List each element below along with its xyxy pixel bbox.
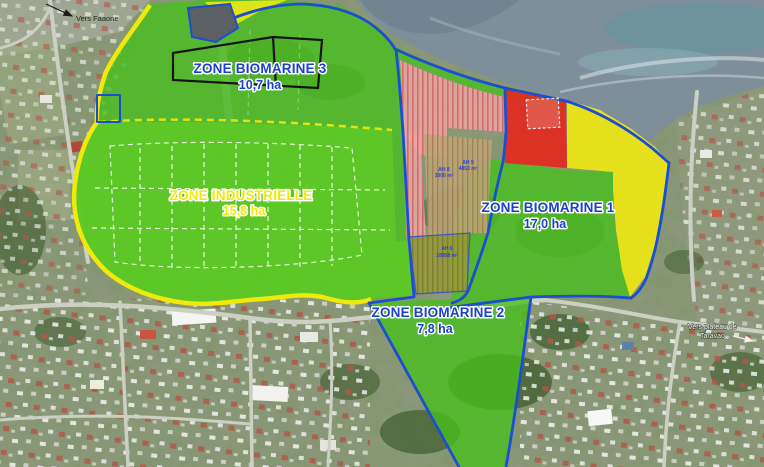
zone-biomarine-1-label: ZONE BIOMARINE 1: [482, 200, 615, 215]
parcel-ah6-ref: AH 6: [441, 246, 453, 252]
vers-faaone-label: Vers Faaone: [76, 14, 119, 23]
vers-taravao-label-line2: Taravao: [700, 333, 725, 340]
zone-industrielle-label: ZONE INDUSTRIELLE: [170, 188, 313, 203]
vers-taravao-label-line1: Vers plateau de: [688, 324, 737, 331]
parcel-ah9-size: 4853 m²: [459, 166, 478, 172]
farm-parcel-lower: [409, 233, 470, 294]
zone-industrielle-area-label: 15,8 ha: [223, 204, 266, 218]
red-zone-parcel: [526, 98, 559, 129]
satellite-map-canvas: ZONE BIOMARINE 3 10,7 ha ZONE INDUSTRIEL…: [0, 0, 764, 467]
zone-biomarine-2-area-label: 7,8 ha: [417, 322, 453, 336]
parcel-ah6-size: 18958 m²: [436, 253, 458, 259]
farm-parcel-upper: [424, 134, 492, 236]
zone-biomarine-3-area-label: 10,7 ha: [239, 78, 282, 92]
zone-biomarine-1-area-label: 17,0 ha: [524, 217, 567, 231]
parcel-ah8-size: 3000 m²: [435, 173, 454, 179]
zone-biomarine-2-label: ZONE BIOMARINE 2: [372, 305, 505, 320]
zoning-map: ZONE BIOMARINE 3 10,7 ha ZONE INDUSTRIEL…: [0, 0, 764, 467]
zone-biomarine-3-label: ZONE BIOMARINE 3: [194, 61, 327, 76]
